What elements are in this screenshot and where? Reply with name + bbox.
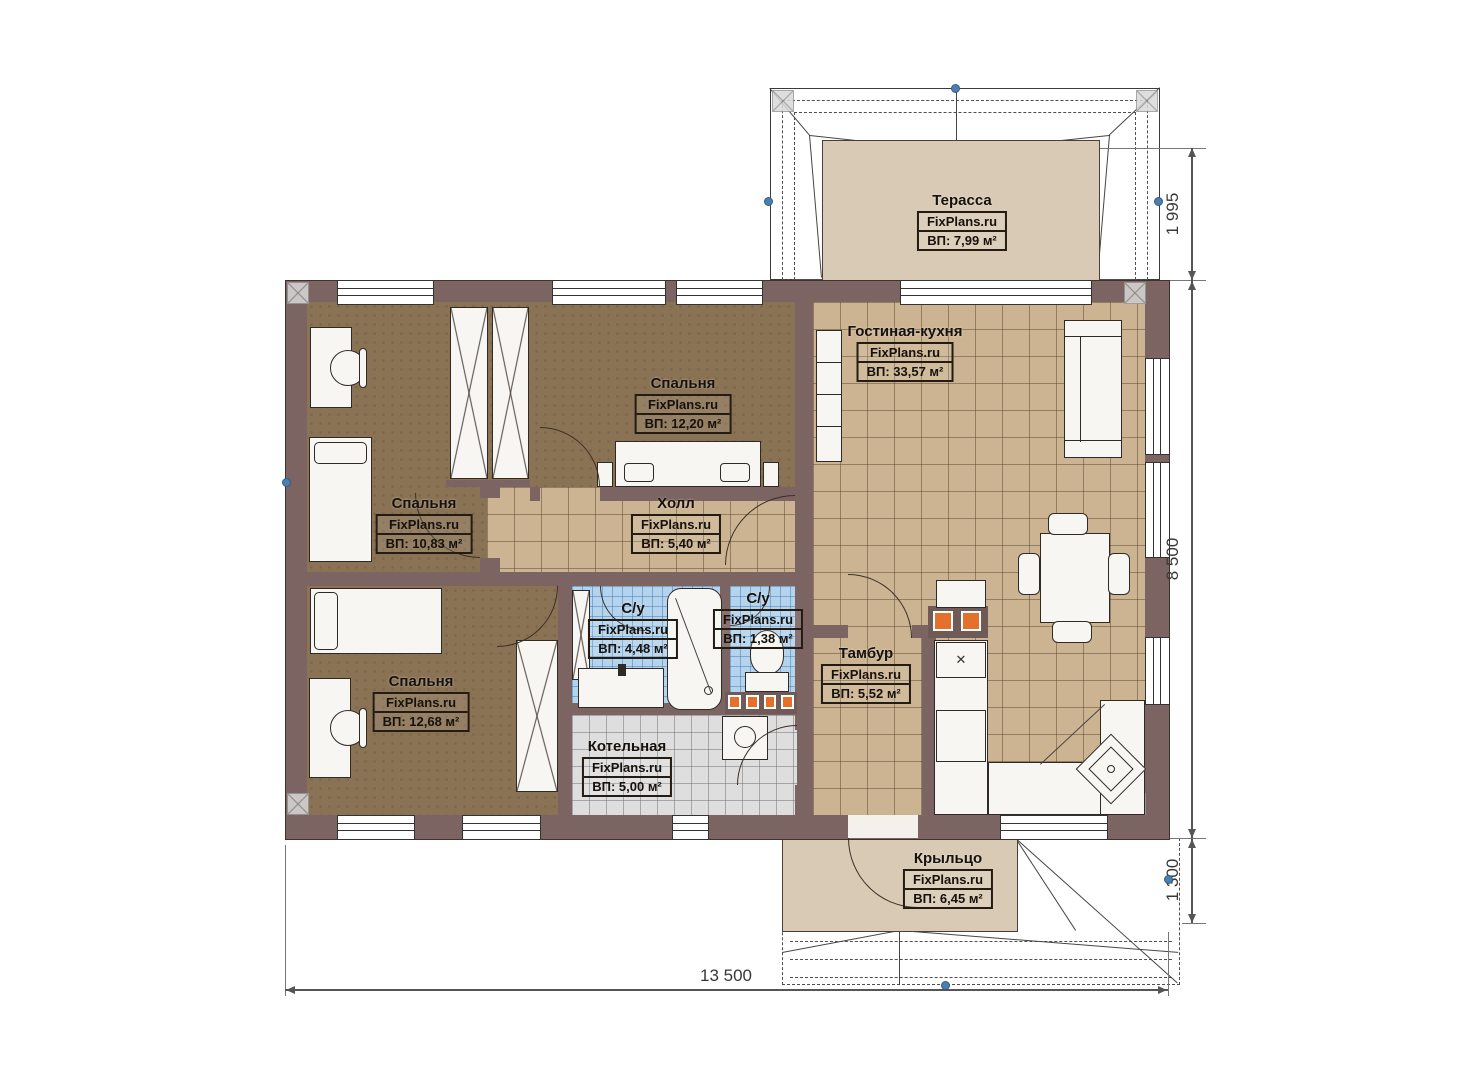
window xyxy=(337,280,434,305)
room-label-hall: Холл FixPlans.ru ВП: 5,40 м² xyxy=(631,495,721,554)
interior-wall xyxy=(446,480,530,487)
room-info-box: FixPlans.ru ВП: 5,52 м² xyxy=(821,664,911,704)
watermark: FixPlans.ru xyxy=(590,621,676,640)
interior-wall xyxy=(307,572,497,586)
room-area: ВП: 12,68 м² xyxy=(375,713,468,730)
dimension-line-vertical xyxy=(1191,280,1193,838)
dimension-arrow xyxy=(1188,829,1196,838)
interior-wall xyxy=(645,572,730,586)
room-label-bedroom-left: Спальня FixPlans.ru ВП: 10,83 м² xyxy=(376,495,473,554)
watermark: FixPlans.ru xyxy=(715,611,801,630)
dimension-arrow xyxy=(1188,281,1196,290)
snap-dot xyxy=(282,478,291,487)
dimension-arrow xyxy=(286,986,295,994)
dimension-line-horizontal xyxy=(285,989,1168,991)
interior-wall xyxy=(813,625,848,638)
radiator-cell xyxy=(933,611,953,631)
room-label-bedroom-top: Спальня FixPlans.ru ВП: 12,20 м² xyxy=(635,375,732,434)
interior-wall xyxy=(558,586,572,815)
wardrobe xyxy=(516,640,558,792)
interior-wall xyxy=(530,487,540,501)
dining-chair xyxy=(1052,621,1092,643)
corner-sink-drain xyxy=(1107,765,1115,773)
bed-pillow xyxy=(314,592,338,650)
kitchen-cabinet xyxy=(936,580,986,608)
dimension-house-width: 13 500 xyxy=(700,966,752,986)
radiator-cell xyxy=(728,695,741,709)
porch-roof-overhang-line xyxy=(790,977,1172,978)
watermark: FixPlans.ru xyxy=(823,666,909,685)
room-info-box: FixPlans.ru ВП: 10,83 м² xyxy=(376,514,473,554)
room-area: ВП: 7,99 м² xyxy=(919,232,1005,249)
tv-unit xyxy=(816,330,842,462)
room-area: ВП: 1,38 м² xyxy=(715,630,801,647)
window xyxy=(1000,815,1108,840)
room-name: Спальня xyxy=(376,495,473,512)
wall-corner-hatch xyxy=(1124,282,1146,304)
room-info-box: FixPlans.ru ВП: 5,40 м² xyxy=(631,514,721,554)
room-name: С/у xyxy=(588,600,678,617)
room-info-box: FixPlans.ru ВП: 5,00 м² xyxy=(582,757,672,797)
room-info-box: FixPlans.ru ВП: 33,57 м² xyxy=(857,342,954,382)
dimension-terrace-depth: 1 995 xyxy=(1163,193,1183,236)
dining-table xyxy=(1040,533,1110,623)
dimension-line-vertical xyxy=(1191,838,1193,923)
window-terrace xyxy=(900,280,1092,305)
snap-dot xyxy=(764,197,773,206)
room-name: Терасса xyxy=(917,192,1007,209)
room-name: С/у xyxy=(713,590,803,607)
radiator xyxy=(725,692,797,714)
extension-line xyxy=(1168,932,1169,996)
sofa-line xyxy=(1064,440,1122,441)
room-name: Холл xyxy=(631,495,721,512)
wardrobe xyxy=(492,307,529,479)
dimension-line-vertical xyxy=(1191,148,1193,280)
interior-wall xyxy=(480,558,500,572)
sofa xyxy=(1064,320,1122,458)
interior-wall xyxy=(558,572,600,586)
interior-wall xyxy=(795,785,813,815)
vanity-faucet xyxy=(618,664,626,676)
dimension-arrow xyxy=(1188,148,1196,157)
room-area: ВП: 6,45 м² xyxy=(905,890,991,907)
bed-pillow xyxy=(720,463,750,482)
room-info-box: FixPlans.ru ВП: 1,38 м² xyxy=(713,609,803,649)
tv-unit-shelf-line xyxy=(816,362,842,363)
window xyxy=(672,815,709,840)
dining-chair xyxy=(1018,553,1040,595)
sofa-line xyxy=(1080,336,1081,442)
room-area: ВП: 5,40 м² xyxy=(633,535,719,552)
watermark: FixPlans.ru xyxy=(637,396,730,415)
interior-wall xyxy=(795,302,813,492)
room-name: Спальня xyxy=(635,375,732,392)
radiator-cell xyxy=(961,611,981,631)
dimension-arrow xyxy=(1188,914,1196,923)
toilet-tank xyxy=(745,672,789,692)
kitchen-cabinet-x: ✕ xyxy=(936,642,986,678)
sofa-line xyxy=(1064,336,1122,337)
room-info-box: FixPlans.ru ВП: 4,48 м² xyxy=(588,619,678,659)
terrace-roof-corner-hatch xyxy=(1136,90,1158,112)
room-info-box: FixPlans.ru ВП: 12,68 м² xyxy=(373,692,470,732)
snap-dot xyxy=(951,84,960,93)
room-label-terrace: Терасса FixPlans.ru ВП: 7,99 м² xyxy=(917,192,1007,251)
room-label-bath-small: С/у FixPlans.ru ВП: 1,38 м² xyxy=(713,590,803,649)
snap-dot xyxy=(1164,875,1173,884)
window xyxy=(1145,637,1170,705)
desk-chair-back xyxy=(359,708,367,748)
interior-wall xyxy=(912,625,922,638)
radiator-cell xyxy=(746,695,759,709)
tv-unit-shelf-line xyxy=(816,394,842,395)
interior-wall xyxy=(770,572,797,586)
room-name: Крыльцо xyxy=(903,850,993,867)
terrace-roof-corner-hatch xyxy=(772,90,794,112)
window xyxy=(462,815,541,840)
room-name: Спальня xyxy=(373,673,470,690)
room-label-bedroom-bottom: Спальня FixPlans.ru ВП: 12,68 м² xyxy=(373,673,470,732)
extension-line xyxy=(285,845,286,996)
radiator-cell xyxy=(781,695,794,709)
interior-wall xyxy=(480,487,500,498)
bed-pillow xyxy=(624,463,654,482)
radiator xyxy=(928,606,988,638)
wall-corner-hatch xyxy=(287,793,309,815)
room-area: ВП: 4,48 м² xyxy=(590,640,676,657)
dining-chair xyxy=(1108,553,1130,595)
room-info-box: FixPlans.ru ВП: 7,99 м² xyxy=(917,211,1007,251)
watermark: FixPlans.ru xyxy=(633,516,719,535)
dimension-arrow xyxy=(1188,839,1196,848)
window xyxy=(676,280,763,305)
room-label-boiler: Котельная FixPlans.ru ВП: 5,00 м² xyxy=(582,738,672,797)
window xyxy=(1145,358,1170,455)
room-label-porch: Крыльцо FixPlans.ru ВП: 6,45 м² xyxy=(903,850,993,909)
extension-line xyxy=(1182,923,1206,924)
room-area: ВП: 5,00 м² xyxy=(584,778,670,795)
snap-dot xyxy=(941,981,950,990)
dimension-arrow xyxy=(1188,271,1196,280)
watermark: FixPlans.ru xyxy=(905,871,991,890)
porch-roof-overhang-line xyxy=(790,959,1172,960)
watermark: FixPlans.ru xyxy=(378,516,471,535)
window xyxy=(552,280,666,305)
room-info-box: FixPlans.ru ВП: 12,20 м² xyxy=(635,394,732,434)
dining-chair xyxy=(1048,513,1088,535)
room-name: Тамбур xyxy=(821,645,911,662)
watermark: FixPlans.ru xyxy=(584,759,670,778)
snap-dot xyxy=(1154,197,1163,206)
room-area: ВП: 10,83 м² xyxy=(378,535,471,552)
room-name: Котельная xyxy=(582,738,672,755)
bed-pillow xyxy=(314,442,367,464)
watermark: FixPlans.ru xyxy=(859,344,952,363)
dimension-house-depth: 8 500 xyxy=(1163,538,1183,581)
wall-corner-hatch xyxy=(287,282,309,304)
wardrobe xyxy=(450,307,488,479)
room-info-box: FixPlans.ru ВП: 6,45 м² xyxy=(903,869,993,909)
room-label-bath-big: С/у FixPlans.ru ВП: 4,48 м² xyxy=(588,600,678,659)
tv-unit-shelf-line xyxy=(816,426,842,427)
room-label-tambour: Тамбур FixPlans.ru ВП: 5,52 м² xyxy=(821,645,911,704)
nightstand xyxy=(763,462,779,487)
watermark: FixPlans.ru xyxy=(919,213,1005,232)
window xyxy=(337,815,415,840)
watermark: FixPlans.ru xyxy=(375,694,468,713)
stove xyxy=(936,710,986,762)
room-area: ВП: 5,52 м² xyxy=(823,685,909,702)
floor-plan-canvas: ✕ Терасса FixPlans.ru ВП: 7,99 м² Гостин… xyxy=(0,0,1473,1080)
room-name: Гостиная-кухня xyxy=(848,323,963,340)
desk-chair-back xyxy=(359,348,367,388)
radiator-cell xyxy=(764,695,777,709)
room-area: ВП: 12,20 м² xyxy=(637,415,730,432)
porch-roof-overhang-line xyxy=(790,941,1172,942)
porch-roof-center-line xyxy=(899,928,900,985)
dimension-arrow xyxy=(1158,986,1167,994)
front-door-opening xyxy=(848,815,918,838)
room-label-living: Гостиная-кухня FixPlans.ru ВП: 33,57 м² xyxy=(848,323,963,382)
room-area: ВП: 33,57 м² xyxy=(859,363,952,380)
